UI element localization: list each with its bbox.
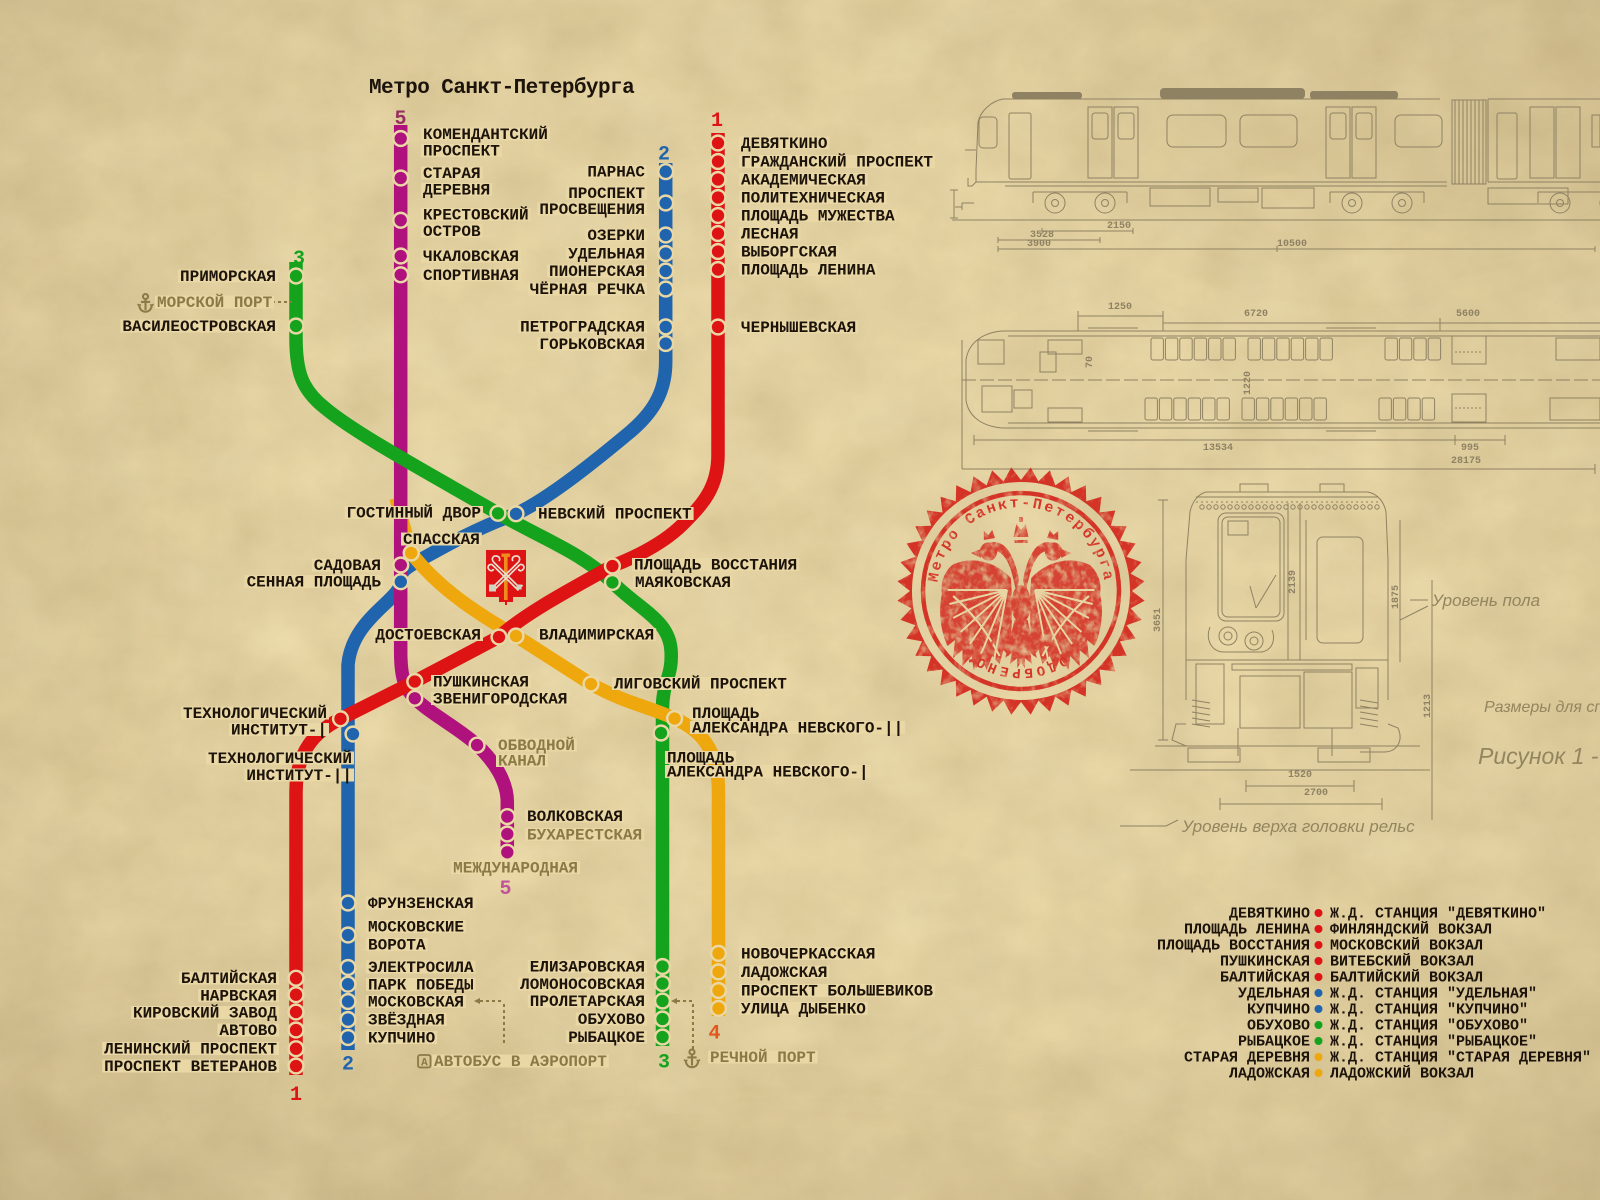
svg-text:МОРСКОЙ ПОРТ: МОРСКОЙ ПОРТ: [157, 293, 273, 312]
svg-text:СЕННАЯ ПЛОЩАДЬ: СЕННАЯ ПЛОЩАДЬ: [247, 573, 382, 591]
svg-text:ПЛОЩАДЬ ЛЕНИНА: ПЛОЩАДЬ ЛЕНИНА: [741, 261, 876, 279]
svg-text:3651: 3651: [1153, 608, 1164, 632]
svg-text:ВИТЕБСКИЙ ВОКЗАЛ: ВИТЕБСКИЙ ВОКЗАЛ: [1330, 953, 1474, 971]
svg-text:ДЕРЕВНЯ: ДЕРЕВНЯ: [423, 181, 490, 199]
svg-text:ОЗЕРКИ: ОЗЕРКИ: [587, 227, 645, 245]
svg-text:1220: 1220: [1243, 371, 1254, 395]
svg-text:АКАДЕМИЧЕСКАЯ: АКАДЕМИЧЕСКАЯ: [741, 171, 866, 189]
svg-text:БАЛТИЙСКАЯ: БАЛТИЙСКАЯ: [181, 969, 277, 988]
svg-text:АЛЕКСАНДРА НЕВСКОГО-|: АЛЕКСАНДРА НЕВСКОГО-|: [667, 763, 869, 781]
svg-text:СТАРАЯ: СТАРАЯ: [423, 165, 481, 183]
svg-text:2139: 2139: [1288, 570, 1299, 594]
svg-text:НЕВСКИЙ ПРОСПЕКТ: НЕВСКИЙ ПРОСПЕКТ: [538, 504, 692, 523]
svg-text:ПЛОЩАДЬ ВОССТАНИЯ: ПЛОЩАДЬ ВОССТАНИЯ: [634, 556, 797, 574]
svg-text:ПРОСВЕЩЕНИЯ: ПРОСВЕЩЕНИЯ: [539, 201, 645, 219]
svg-text:ВОЛКОВСКАЯ: ВОЛКОВСКАЯ: [527, 808, 623, 826]
svg-text:ГОСТИННЫЙ ДВОР: ГОСТИННЫЙ ДВОР: [347, 503, 481, 522]
svg-text:МЕЖДУНАРОДНАЯ: МЕЖДУНАРОДНАЯ: [453, 859, 578, 877]
svg-text:70: 70: [1085, 356, 1096, 368]
svg-text:ПЕТРОГРАДСКАЯ: ПЕТРОГРАДСКАЯ: [520, 318, 645, 336]
svg-text:ПАРК ПОБЕДЫ: ПАРК ПОБЕДЫ: [368, 976, 474, 994]
svg-text:Уровень верха головки рельс: Уровень верха головки рельс: [1181, 817, 1415, 836]
svg-text:ПЛОЩАДЬ ЛЕНИНА: ПЛОЩАДЬ ЛЕНИНА: [1184, 922, 1310, 939]
svg-text:ЛАДОЖСКАЯ: ЛАДОЖСКАЯ: [741, 964, 827, 982]
svg-text:МОСКОВСКИЕ: МОСКОВСКИЕ: [368, 918, 464, 936]
svg-text:СПОРТИВНАЯ: СПОРТИВНАЯ: [423, 267, 519, 285]
svg-text:ПРОЛЕТАРСКАЯ: ПРОЛЕТАРСКАЯ: [530, 993, 645, 1011]
svg-text:ТЕХНОЛОГИЧЕСКИЙ: ТЕХНОЛОГИЧЕСКИЙ: [208, 749, 352, 768]
svg-text:ЕЛИЗАРОВСКАЯ: ЕЛИЗАРОВСКАЯ: [530, 958, 645, 976]
svg-text:ВОРОТА: ВОРОТА: [368, 936, 426, 954]
svg-text:АЛЕКСАНДРА НЕВСКОГО-||: АЛЕКСАНДРА НЕВСКОГО-||: [692, 719, 903, 737]
svg-text:МОСКОВСКИЙ ВОКЗАЛ: МОСКОВСКИЙ ВОКЗАЛ: [1330, 937, 1483, 955]
svg-text:ВЫБОРГСКАЯ: ВЫБОРГСКАЯ: [741, 243, 837, 261]
svg-text:2: 2: [658, 144, 670, 167]
svg-text:МАЯКОВСКАЯ: МАЯКОВСКАЯ: [635, 574, 731, 592]
svg-text:ОБУХОВО: ОБУХОВО: [578, 1011, 646, 1029]
svg-text:НАРВСКАЯ: НАРВСКАЯ: [200, 987, 277, 1005]
svg-text:1875: 1875: [1391, 585, 1402, 609]
svg-text:1213: 1213: [1423, 694, 1434, 718]
svg-text:ЛЕСНАЯ: ЛЕСНАЯ: [741, 225, 799, 243]
svg-text:МОСКОВСКАЯ: МОСКОВСКАЯ: [368, 993, 464, 1011]
svg-text:ПУШКИНСКАЯ: ПУШКИНСКАЯ: [1220, 954, 1310, 971]
svg-text:КУПЧИНО: КУПЧИНО: [1247, 1002, 1310, 1019]
svg-text:1250: 1250: [1108, 302, 1132, 313]
svg-text:ДЕВЯТКИНО: ДЕВЯТКИНО: [1229, 906, 1310, 923]
svg-text:Рисунок 1 -: Рисунок 1 -: [1478, 743, 1599, 769]
svg-text:995: 995: [1461, 443, 1479, 454]
svg-text:1: 1: [711, 110, 723, 133]
svg-text:ОСТРОВ: ОСТРОВ: [423, 223, 481, 241]
svg-text:ЧЕРНЫШЕВСКАЯ: ЧЕРНЫШЕВСКАЯ: [741, 319, 856, 337]
svg-text:НОВОЧЕРКАССКАЯ: НОВОЧЕРКАССКАЯ: [741, 945, 875, 963]
svg-text:ДЕВЯТКИНО: ДЕВЯТКИНО: [741, 135, 828, 153]
svg-text:АВТОВО: АВТОВО: [219, 1022, 277, 1040]
svg-text:5600: 5600: [1456, 309, 1480, 320]
svg-text:РЫБАЦКОЕ: РЫБАЦКОЕ: [568, 1029, 645, 1047]
svg-text:ЛОМОНОСОВСКАЯ: ЛОМОНОСОВСКАЯ: [520, 976, 645, 994]
svg-text:УДЕЛЬНАЯ: УДЕЛЬНАЯ: [568, 245, 645, 263]
svg-text:КОМЕНДАНТСКИЙ: КОМЕНДАНТСКИЙ: [423, 125, 548, 144]
svg-text:ФРУНЗЕНСКАЯ: ФРУНЗЕНСКАЯ: [368, 895, 474, 913]
svg-text:ЗВЕНИГОРОДСКАЯ: ЗВЕНИГОРОДСКАЯ: [433, 690, 567, 708]
svg-text:ЛЕНИНСКИЙ ПРОСПЕКТ: ЛЕНИНСКИЙ ПРОСПЕКТ: [104, 1039, 277, 1058]
svg-text:ПРОСПЕКТ ВЕТЕРАНОВ: ПРОСПЕКТ ВЕТЕРАНОВ: [104, 1058, 277, 1076]
svg-text:А: А: [421, 1057, 428, 1069]
svg-text:ЧЁРНАЯ РЕЧКА: ЧЁРНАЯ РЕЧКА: [530, 280, 646, 299]
svg-text:10500: 10500: [1277, 239, 1307, 250]
svg-text:ЧКАЛОВСКАЯ: ЧКАЛОВСКАЯ: [423, 248, 519, 266]
svg-text:2: 2: [342, 1054, 354, 1077]
svg-text:ПАРНАС: ПАРНАС: [587, 163, 645, 181]
svg-text:БАЛТИЙСКИЙ ВОКЗАЛ: БАЛТИЙСКИЙ ВОКЗАЛ: [1330, 969, 1483, 987]
svg-text:Ж.Д. СТАНЦИЯ "РЫБАЦКОЕ": Ж.Д. СТАНЦИЯ "РЫБАЦКОЕ": [1330, 1034, 1537, 1051]
svg-text:ЛИГОВСКИЙ ПРОСПЕКТ: ЛИГОВСКИЙ ПРОСПЕКТ: [614, 674, 787, 693]
svg-text:ГРАЖДАНСКИЙ ПРОСПЕКТ: ГРАЖДАНСКИЙ ПРОСПЕКТ: [741, 152, 933, 171]
svg-text:КАНАЛ: КАНАЛ: [498, 752, 546, 770]
svg-text:4: 4: [708, 1023, 720, 1046]
svg-text:ВАСИЛЕОСТРОВСКАЯ: ВАСИЛЕОСТРОВСКАЯ: [122, 318, 276, 336]
svg-text:УЛИЦА ДЫБЕНКО: УЛИЦА ДЫБЕНКО: [741, 1000, 866, 1018]
svg-text:ЭЛЕКТРОСИЛА: ЭЛЕКТРОСИЛА: [368, 959, 474, 977]
svg-text:Ж.Д. СТАНЦИЯ "ОБУХОВО": Ж.Д. СТАНЦИЯ "ОБУХОВО": [1330, 1018, 1528, 1035]
svg-text:Ж.Д. СТАНЦИЯ "КУПЧИНО": Ж.Д. СТАНЦИЯ "КУПЧИНО": [1330, 1002, 1528, 1019]
svg-text:6720: 6720: [1244, 309, 1268, 320]
svg-text:ПРИМОРСКАЯ: ПРИМОРСКАЯ: [180, 268, 276, 286]
svg-text:1: 1: [290, 1084, 302, 1107]
svg-text:ФИНЛЯНДСКИЙ ВОКЗАЛ: ФИНЛЯНДСКИЙ ВОКЗАЛ: [1330, 921, 1492, 939]
svg-text:ПРОСПЕКТ: ПРОСПЕКТ: [423, 142, 500, 160]
svg-text:ЗВЁЗДНАЯ: ЗВЁЗДНАЯ: [368, 1010, 445, 1029]
svg-text:АВТОБУС В АЭРОПОРТ: АВТОБУС В АЭРОПОРТ: [434, 1053, 607, 1071]
svg-text:ДОСТОЕВСКАЯ: ДОСТОЕВСКАЯ: [375, 626, 481, 644]
svg-text:РЕЧНОЙ ПОРТ: РЕЧНОЙ ПОРТ: [710, 1048, 816, 1067]
svg-text:БАЛТИЙСКАЯ: БАЛТИЙСКАЯ: [1220, 969, 1310, 987]
svg-text:КРЕСТОВСКИЙ: КРЕСТОВСКИЙ: [423, 205, 529, 224]
svg-text:ОБУХОВО: ОБУХОВО: [1247, 1018, 1310, 1035]
svg-text:ПОЛИТЕХНИЧЕСКАЯ: ПОЛИТЕХНИЧЕСКАЯ: [741, 189, 885, 207]
svg-text:ПРОСПЕКТ БОЛЬШЕВИКОВ: ПРОСПЕКТ БОЛЬШЕВИКОВ: [741, 982, 933, 1000]
svg-text:ПИОНЕРСКАЯ: ПИОНЕРСКАЯ: [549, 263, 645, 281]
svg-text:Ж.Д. СТАНЦИЯ "СТАРАЯ ДЕРЕВНЯ": Ж.Д. СТАНЦИЯ "СТАРАЯ ДЕРЕВНЯ": [1330, 1050, 1591, 1067]
svg-text:КУПЧИНО: КУПЧИНО: [368, 1029, 436, 1047]
svg-text:5: 5: [394, 108, 406, 131]
svg-text:КИРОВСКИЙ ЗАВОД: КИРОВСКИЙ ЗАВОД: [133, 1003, 277, 1022]
svg-text:Размеры для спр: Размеры для спр: [1484, 699, 1600, 716]
svg-text:1520: 1520: [1288, 770, 1312, 781]
svg-text:2700: 2700: [1304, 788, 1328, 799]
svg-text:ТЕХНОЛОГИЧЕСКИЙ: ТЕХНОЛОГИЧЕСКИЙ: [183, 704, 327, 723]
svg-text:ГОРЬКОВСКАЯ: ГОРЬКОВСКАЯ: [539, 336, 645, 354]
svg-text:Ж.Д. СТАНЦИЯ "УДЕЛЬНАЯ": Ж.Д. СТАНЦИЯ "УДЕЛЬНАЯ": [1330, 986, 1537, 1003]
svg-text:ЛАДОЖСКАЯ: ЛАДОЖСКАЯ: [1229, 1066, 1310, 1083]
svg-text:ВЛАДИМИРСКАЯ: ВЛАДИМИРСКАЯ: [539, 626, 654, 644]
svg-text:БУХАРЕСТСКАЯ: БУХАРЕСТСКАЯ: [527, 826, 642, 844]
svg-text:УДЕЛЬНАЯ: УДЕЛЬНАЯ: [1238, 986, 1310, 1003]
svg-text:Ж.Д. СТАНЦИЯ "ДЕВЯТКИНО": Ж.Д. СТАНЦИЯ "ДЕВЯТКИНО": [1330, 906, 1546, 923]
svg-text:5: 5: [499, 878, 511, 901]
svg-text:СТАРАЯ ДЕРЕВНЯ: СТАРАЯ ДЕРЕВНЯ: [1184, 1050, 1310, 1067]
svg-text:2150: 2150: [1107, 221, 1131, 232]
svg-text:ПЛОЩАДЬ ВОССТАНИЯ: ПЛОЩАДЬ ВОССТАНИЯ: [1157, 938, 1310, 955]
svg-text:3: 3: [658, 1052, 670, 1075]
svg-text:Уровень пола: Уровень пола: [1431, 591, 1540, 610]
svg-text:РЫБАЦКОЕ: РЫБАЦКОЕ: [1238, 1034, 1310, 1051]
svg-text:3900: 3900: [1027, 239, 1051, 250]
svg-text:Метро Санкт-Петербурга: Метро Санкт-Петербурга: [369, 77, 635, 100]
svg-text:САДОВАЯ: САДОВАЯ: [314, 557, 381, 575]
svg-text:ИНСТИТУТ-||: ИНСТИТУТ-||: [246, 767, 352, 785]
svg-text:ПУШКИНСКАЯ: ПУШКИНСКАЯ: [433, 673, 529, 691]
svg-text:ИНСТИТУТ-|: ИНСТИТУТ-|: [231, 721, 327, 739]
svg-text:ПЛОЩАДЬ МУЖЕСТВА: ПЛОЩАДЬ МУЖЕСТВА: [741, 207, 895, 225]
svg-text:13534: 13534: [1203, 443, 1233, 454]
svg-text:ЛАДОЖСКИЙ ВОКЗАЛ: ЛАДОЖСКИЙ ВОКЗАЛ: [1330, 1065, 1474, 1083]
svg-text:28175: 28175: [1451, 456, 1481, 467]
